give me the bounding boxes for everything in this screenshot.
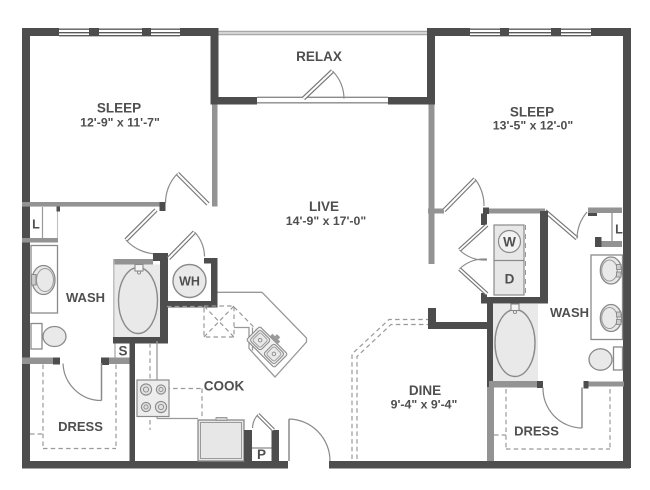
svg-text:14'-9" x 17'-0": 14'-9" x 17'-0" <box>286 214 367 228</box>
svg-text:L: L <box>615 223 623 237</box>
svg-text:DINE: DINE <box>409 383 441 398</box>
svg-text:W: W <box>503 235 516 250</box>
svg-text:D: D <box>505 272 515 287</box>
svg-text:P: P <box>257 447 266 462</box>
svg-text:9'-4" x 9'-4": 9'-4" x 9'-4" <box>391 398 458 412</box>
svg-text:SLEEP: SLEEP <box>510 105 554 120</box>
svg-text:S: S <box>118 344 127 359</box>
svg-text:13'-5" x 12'-0": 13'-5" x 12'-0" <box>493 119 574 133</box>
svg-text:12'-9" x 11'-7": 12'-9" x 11'-7" <box>80 116 160 130</box>
svg-text:WASH: WASH <box>550 305 589 320</box>
svg-text:SLEEP: SLEEP <box>97 101 141 116</box>
svg-text:COOK: COOK <box>204 379 245 394</box>
svg-text:RELAX: RELAX <box>296 49 342 64</box>
svg-text:L: L <box>32 218 40 232</box>
svg-text:LIVE: LIVE <box>309 199 339 214</box>
svg-text:WASH: WASH <box>66 290 105 305</box>
svg-text:DRESS: DRESS <box>514 424 559 439</box>
svg-text:DRESS: DRESS <box>58 419 103 434</box>
svg-text:WH: WH <box>179 275 200 289</box>
